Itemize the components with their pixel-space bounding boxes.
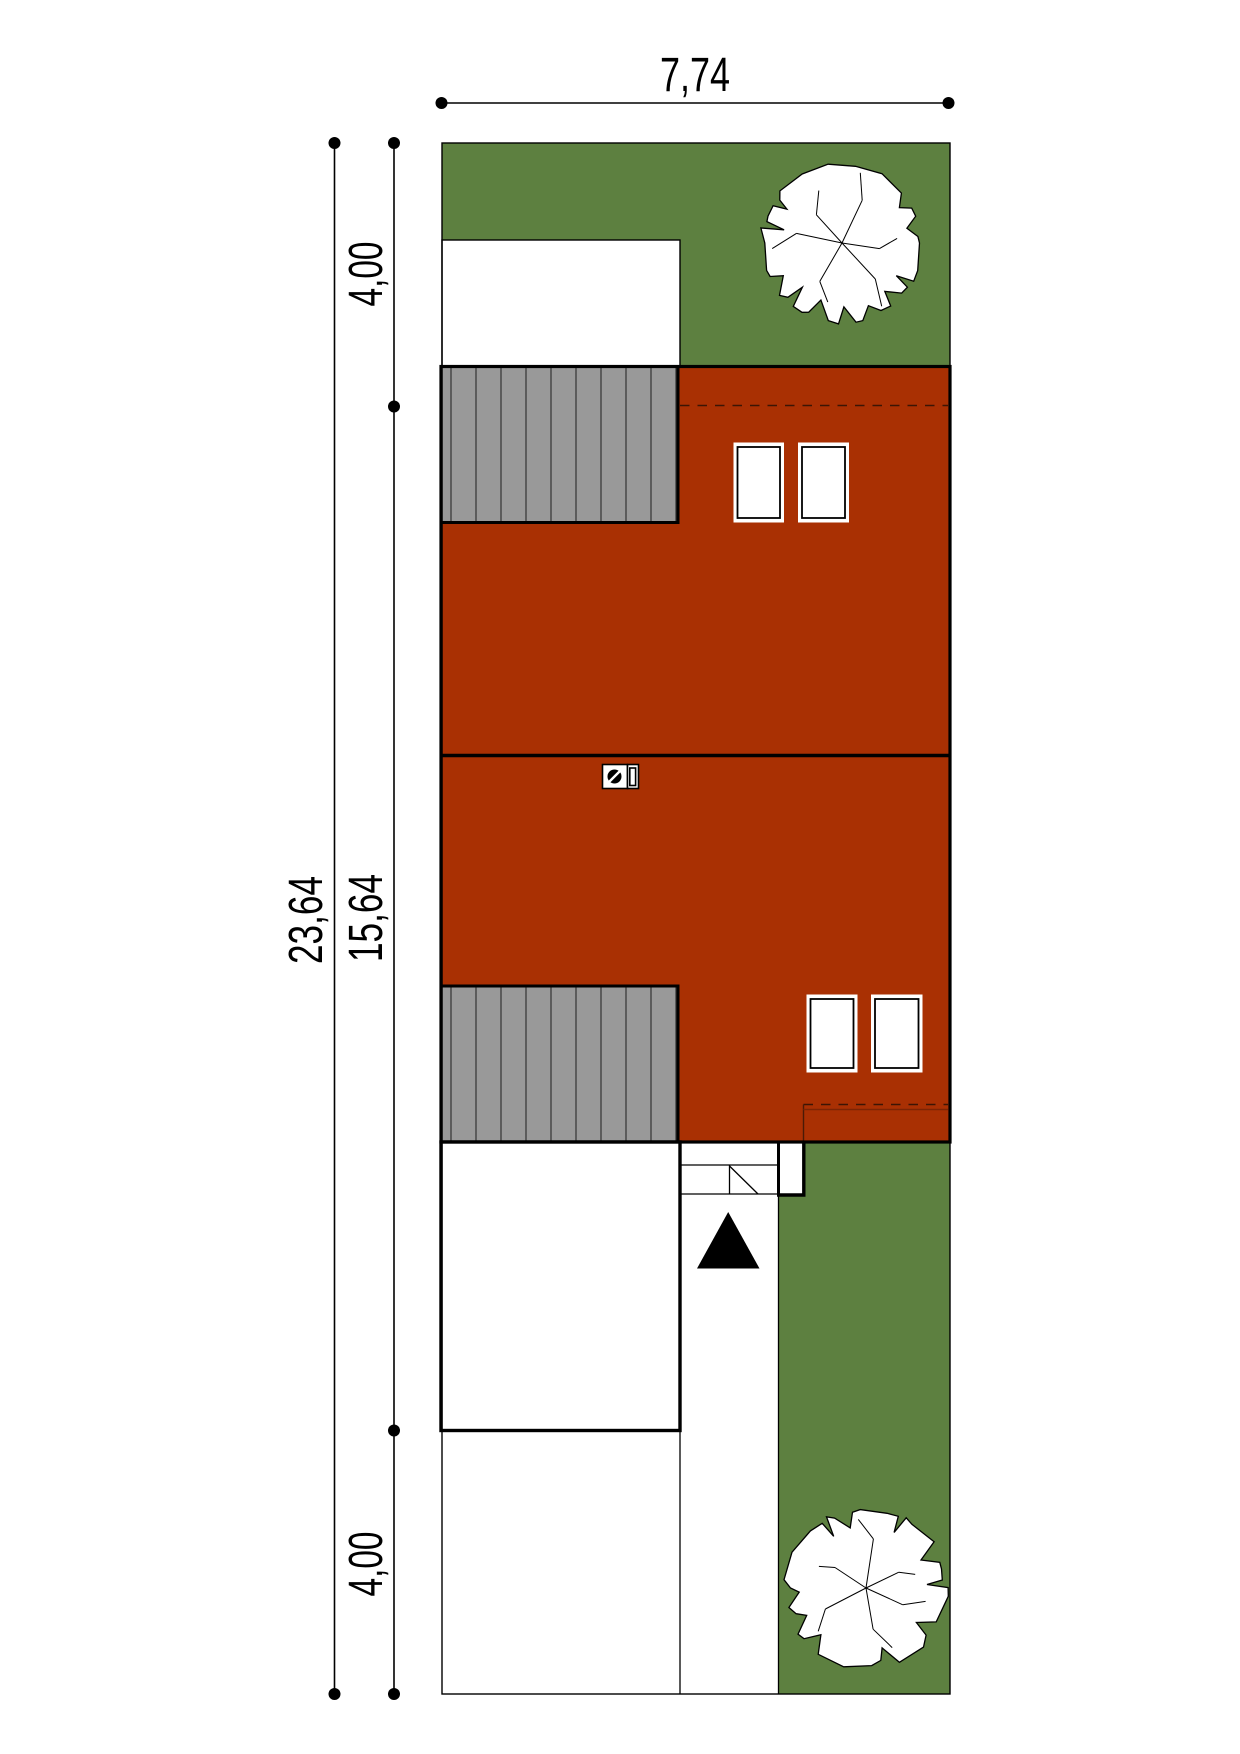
svg-text:15,64: 15,64 [340, 874, 393, 962]
svg-text:7,74: 7,74 [660, 49, 730, 102]
svg-text:4,00: 4,00 [340, 242, 393, 307]
svg-text:4,00: 4,00 [340, 1532, 393, 1597]
svg-text:23,64: 23,64 [280, 876, 333, 964]
